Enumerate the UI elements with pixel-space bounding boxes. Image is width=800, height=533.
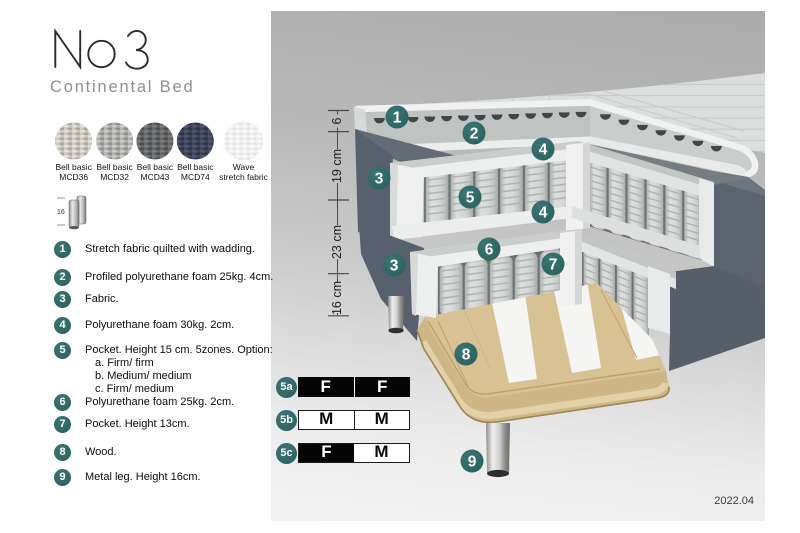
- svg-text:16 cm: 16 cm: [330, 281, 344, 315]
- svg-text:4: 4: [539, 205, 548, 222]
- svg-text:3: 3: [375, 171, 384, 188]
- svg-text:2: 2: [470, 126, 479, 143]
- svg-text:4: 4: [539, 142, 548, 159]
- svg-text:6: 6: [485, 242, 494, 259]
- svg-text:3: 3: [390, 258, 399, 275]
- svg-text:6: 6: [330, 117, 344, 124]
- svg-text:5: 5: [466, 190, 475, 207]
- svg-text:9: 9: [468, 454, 477, 471]
- svg-text:8: 8: [462, 347, 471, 364]
- svg-text:23 cm: 23 cm: [330, 225, 344, 259]
- svg-text:19 cm: 19 cm: [330, 149, 344, 183]
- svg-text:1: 1: [393, 110, 402, 127]
- svg-text:7: 7: [549, 257, 558, 274]
